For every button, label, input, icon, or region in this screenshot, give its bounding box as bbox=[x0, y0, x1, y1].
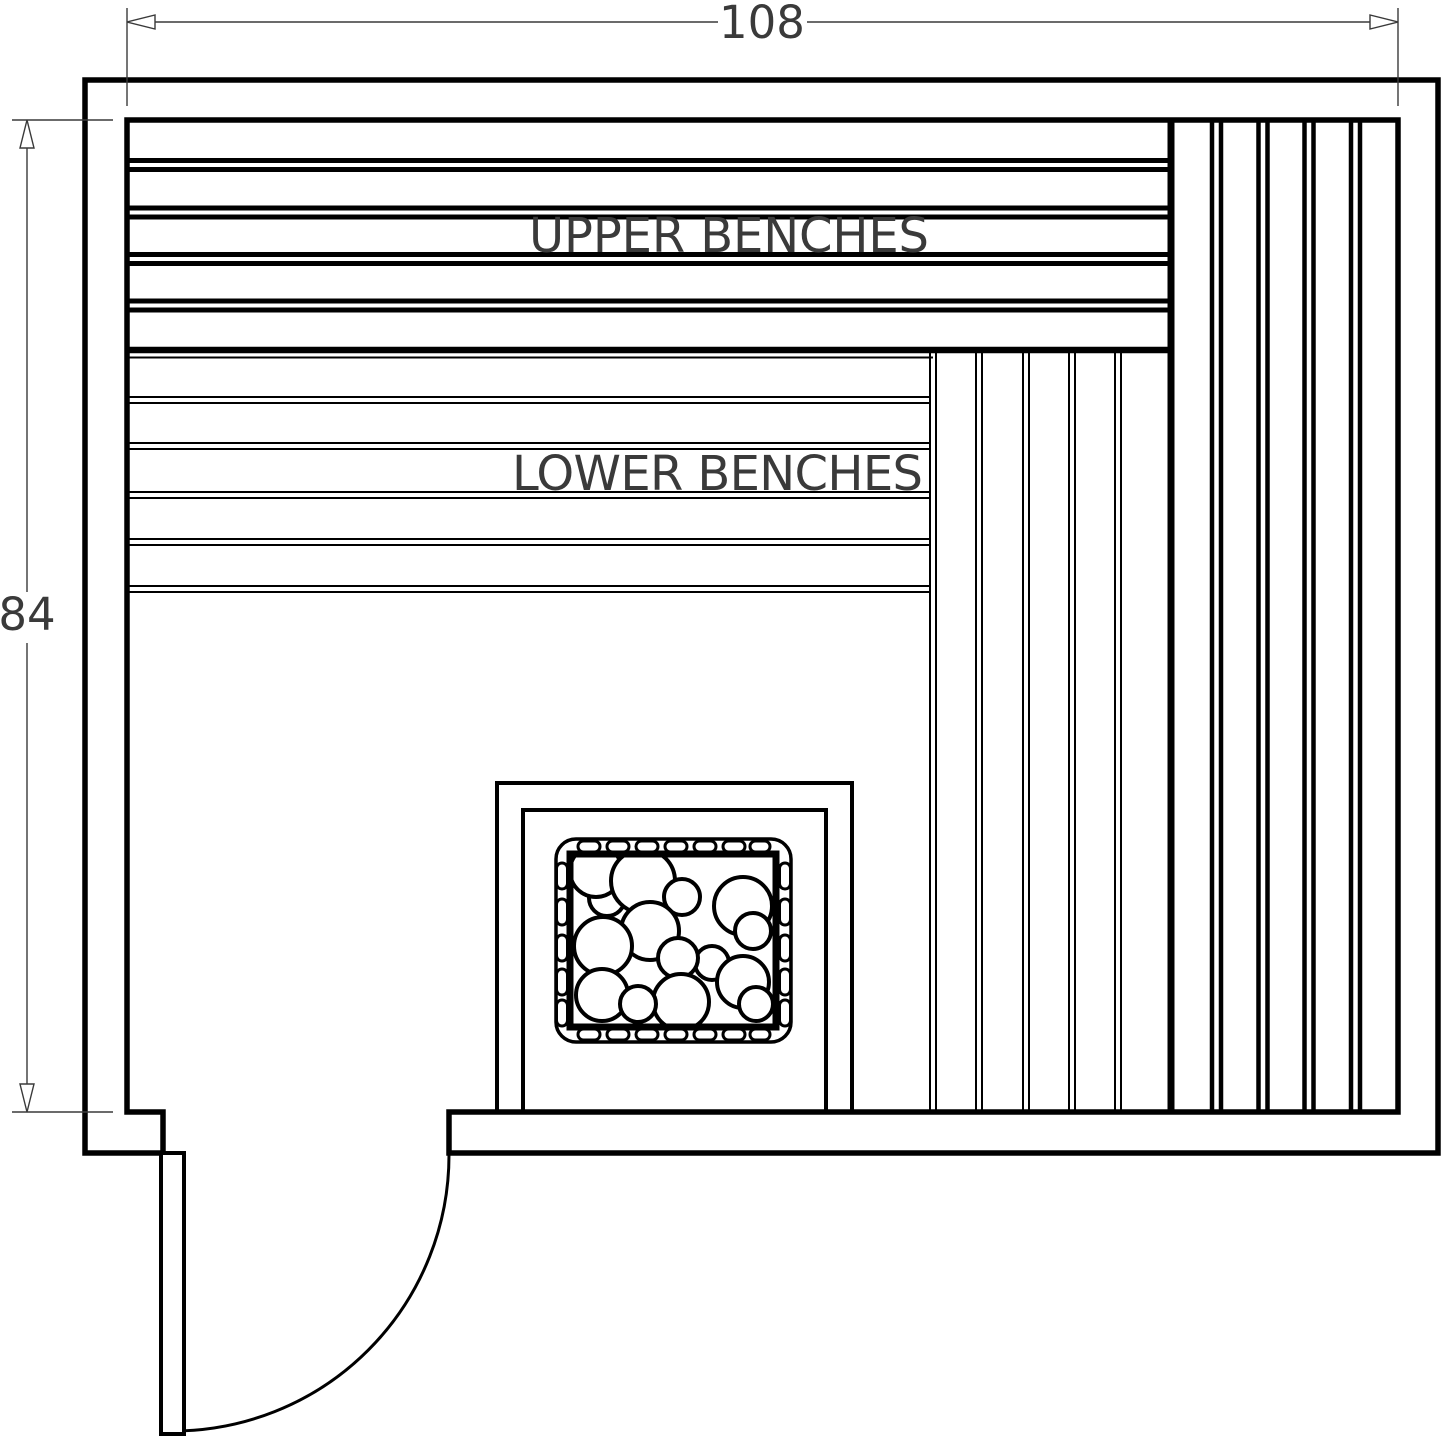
rim-stone bbox=[750, 1029, 770, 1040]
rim-stone bbox=[694, 1029, 716, 1040]
rim-stone bbox=[665, 1029, 687, 1040]
sauna-plan-drawing: UPPER BENCHES LOWER BENCHES bbox=[0, 0, 1445, 1445]
floor-planks-middle bbox=[930, 352, 1121, 1110]
stone bbox=[735, 913, 771, 949]
door-swing-arc bbox=[173, 1155, 449, 1431]
upper-benches: UPPER BENCHES bbox=[129, 161, 1174, 351]
rim-stone bbox=[723, 841, 745, 852]
stone bbox=[620, 986, 656, 1022]
rim-stone bbox=[607, 841, 629, 852]
height-dimension-value: 84 bbox=[0, 588, 56, 641]
arrow-down-icon bbox=[20, 1084, 34, 1112]
sauna-plan-page: UPPER BENCHES LOWER BENCHES bbox=[0, 0, 1445, 1445]
rim-stone bbox=[750, 841, 770, 852]
upper-benches-label: UPPER BENCHES bbox=[529, 208, 929, 264]
rim-stone bbox=[557, 969, 568, 995]
rim-stone bbox=[578, 841, 600, 852]
stone bbox=[574, 917, 632, 975]
door-leaf bbox=[161, 1153, 184, 1434]
rim-stone bbox=[780, 969, 791, 995]
arrow-up-icon bbox=[20, 120, 34, 148]
arrow-right-icon bbox=[1370, 15, 1398, 29]
arrow-left-icon bbox=[127, 15, 155, 29]
width-dimension-value: 108 bbox=[719, 0, 805, 49]
rim-stone bbox=[780, 1000, 791, 1026]
rim-stone bbox=[694, 841, 716, 852]
rim-stone bbox=[665, 841, 687, 852]
rim-stone bbox=[780, 935, 791, 961]
rim-stone bbox=[557, 1000, 568, 1026]
rim-stone bbox=[607, 1029, 629, 1040]
door bbox=[161, 1153, 449, 1434]
stone bbox=[658, 938, 698, 978]
rim-stone bbox=[780, 863, 791, 889]
rim-stone bbox=[557, 935, 568, 961]
rim-stone bbox=[578, 1029, 600, 1040]
rim-stone bbox=[636, 1029, 658, 1040]
rim-stone bbox=[557, 863, 568, 889]
lower-benches: LOWER BENCHES bbox=[129, 358, 933, 593]
rim-stone bbox=[557, 899, 568, 925]
stone bbox=[739, 987, 773, 1021]
lower-benches-label: LOWER BENCHES bbox=[512, 446, 923, 502]
wall-planks-right bbox=[1171, 120, 1360, 1112]
heater-stones bbox=[570, 845, 773, 1030]
rim-stone bbox=[723, 1029, 745, 1040]
rim-stone bbox=[636, 841, 658, 852]
stone bbox=[653, 974, 709, 1030]
rim-stone bbox=[780, 899, 791, 925]
heater bbox=[497, 783, 852, 1110]
